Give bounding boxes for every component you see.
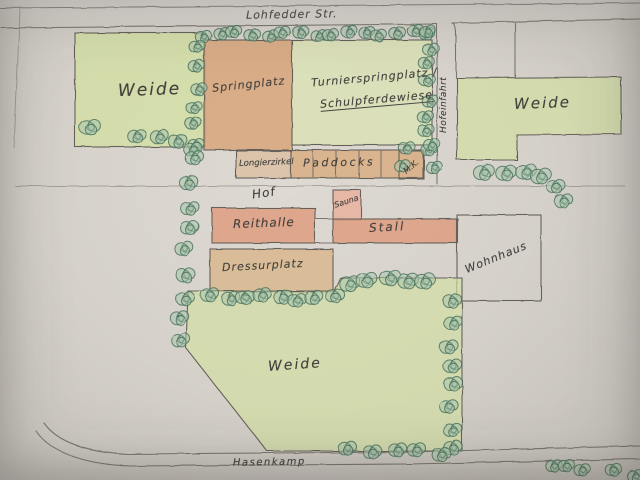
longierzirkel-label: Longierzirkel: [239, 158, 294, 168]
hofeinfahrt-label: Hofeinfahrt: [440, 77, 449, 133]
left-boundary-line: [14, 8, 20, 148]
weide-right-area: [457, 77, 621, 160]
stall-connector-lines: [315, 219, 333, 243]
street-top-label: Lohfedder Str.: [246, 8, 338, 21]
hof-label: Hof: [251, 185, 276, 200]
paddocks-label: Paddocks: [303, 156, 375, 168]
stall-label: Stall: [369, 220, 406, 234]
site-plan-photo: Lohfedder Str. Weide Springplatz Turnier…: [0, 0, 640, 480]
street-bottom-label: Hasenkamp: [233, 457, 306, 468]
site-plan-drawing: [0, 0, 640, 480]
springplatz-area: [204, 40, 292, 150]
reithalle-label: Reithalle: [233, 216, 295, 230]
weide-left-label: Weide: [118, 81, 182, 100]
weide-right-label: Weide: [514, 95, 571, 112]
weide-bottom-label: Weide: [268, 356, 323, 374]
